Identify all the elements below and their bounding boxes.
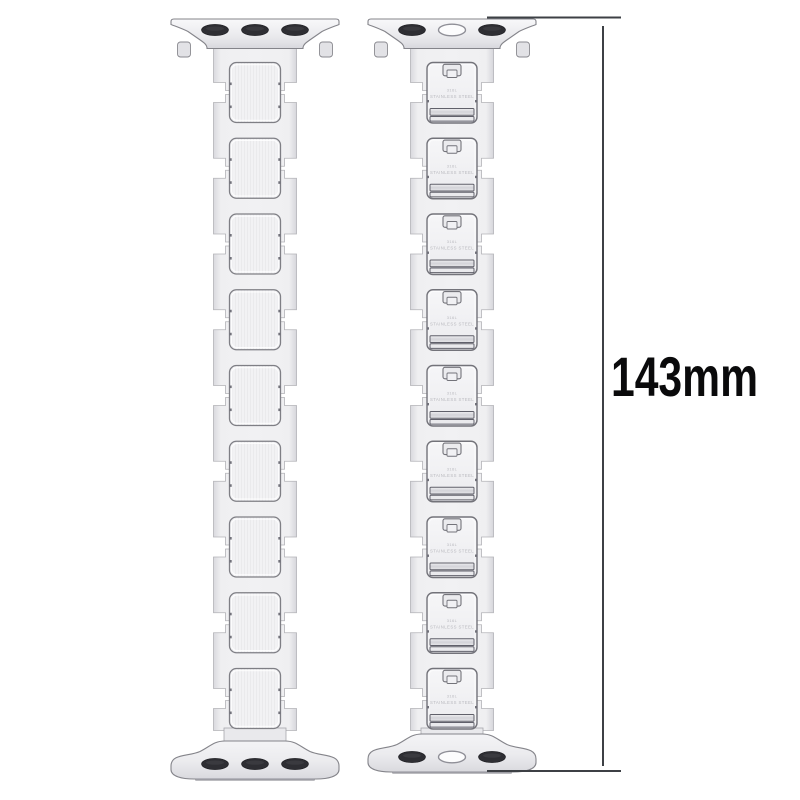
dimension-annotation: 143mm: [487, 18, 758, 772]
hinge-pin-mark: [278, 636, 280, 639]
hinge-pin-mark: [278, 386, 280, 389]
band-link-plate-back: 316LSTAINLESS STEEL: [427, 214, 477, 275]
clasp-bar: [430, 639, 474, 646]
lug-slot-sheen: [403, 27, 421, 31]
band-link-square: [230, 669, 281, 729]
adapter-side-tab: [178, 42, 191, 57]
link-face: [230, 441, 281, 501]
lug-slot-sheen: [403, 754, 421, 758]
adapter-side-tab: [517, 42, 530, 57]
clasp-tab-inner: [447, 373, 457, 381]
hinge-pin-mark: [475, 555, 477, 557]
clasp-bar: [430, 192, 474, 197]
clasp-bar: [430, 184, 474, 191]
band-link-plate-back: 316LSTAINLESS STEEL: [427, 138, 477, 199]
hinge-pin-mark: [278, 181, 280, 184]
clasp-tab-inner: [447, 525, 457, 533]
adapter-bottom-edge: [195, 779, 315, 781]
hinge-pin-mark: [475, 327, 477, 329]
hinge-pin-mark: [230, 181, 232, 184]
clasp-bar: [430, 487, 474, 494]
hinge-pin-mark: [278, 257, 280, 260]
adapter-side-tab: [320, 42, 333, 57]
lug-slot-sheen: [206, 27, 224, 31]
hinge-pin-mark: [427, 252, 429, 254]
hinge-pin-mark: [278, 461, 280, 464]
clasp-tab-inner: [447, 70, 457, 78]
clasp-bar: [430, 117, 474, 122]
band-link-square: [230, 214, 281, 274]
link-face: [230, 214, 281, 274]
engraving-line-1: 316L: [447, 466, 458, 471]
band-link-square: [230, 366, 281, 426]
link-face: [230, 517, 281, 577]
hinge-pin-mark: [475, 479, 477, 481]
clasp-bar: [430, 109, 474, 116]
lug-slot-sheen: [246, 27, 264, 31]
hinge-pin-mark: [427, 555, 429, 557]
band-link-plate-back: 316LSTAINLESS STEEL: [427, 593, 477, 654]
hinge-pin-mark: [230, 83, 232, 86]
clasp-bar: [430, 571, 474, 576]
lug-slot-sheen: [483, 754, 501, 758]
hinge-pin-mark: [230, 613, 232, 616]
band-link-square: [230, 138, 281, 198]
clasp-tab-inner: [447, 449, 457, 457]
clasp-bar: [430, 412, 474, 419]
hinge-pin-mark: [278, 106, 280, 109]
hinge-pin-mark: [230, 560, 232, 563]
hinge-pin-mark: [278, 333, 280, 336]
hinge-pin-mark: [278, 310, 280, 313]
clasp-tab-inner: [447, 676, 457, 684]
engraving-line-2: STAINLESS STEEL: [430, 624, 474, 629]
clasp-bar: [430, 723, 474, 728]
hinge-pin-mark: [230, 689, 232, 692]
hinge-pin-mark: [230, 636, 232, 639]
dimension-label: 143mm: [611, 345, 758, 408]
clasp-tab-inner: [447, 146, 457, 154]
link-face: [230, 366, 281, 426]
hinge-pin-mark: [230, 484, 232, 487]
hinge-pin-mark: [427, 327, 429, 329]
band-link-plate-back: 316LSTAINLESS STEEL: [427, 63, 477, 124]
hinge-pin-mark: [427, 403, 429, 405]
link-face: [230, 63, 281, 123]
engraving-line-2: STAINLESS STEEL: [430, 170, 474, 175]
product-image-canvas: 316LSTAINLESS STEEL316LSTAINLESS STEEL31…: [0, 0, 800, 800]
link-face: [230, 593, 281, 653]
lug-slot-light: [439, 751, 466, 763]
engraving-line-1: 316L: [447, 163, 458, 168]
band-link-square: [230, 441, 281, 501]
hinge-pin-mark: [475, 252, 477, 254]
hinge-pin-mark: [278, 712, 280, 715]
clasp-bar: [430, 420, 474, 425]
hinge-pin-mark: [230, 409, 232, 412]
watch-band-product-photo: 316LSTAINLESS STEEL316LSTAINLESS STEEL31…: [0, 0, 800, 800]
hinge-pin-mark: [278, 689, 280, 692]
engraving-line-1: 316L: [447, 315, 458, 320]
band-link-plate-back: 316LSTAINLESS STEEL: [427, 517, 477, 578]
band-link-plate-back: 316LSTAINLESS STEEL: [427, 366, 477, 427]
band-link-plate-back: 316LSTAINLESS STEEL: [427, 441, 477, 502]
engraving-line-2: STAINLESS STEEL: [430, 397, 474, 402]
lug-slot-sheen: [483, 27, 501, 31]
hinge-pin-mark: [230, 310, 232, 313]
band-link-square: [230, 290, 281, 350]
watch-lug-adapter-bottom: [171, 741, 339, 781]
hinge-pin-mark: [230, 537, 232, 540]
engraving-line-1: 316L: [447, 391, 458, 396]
clasp-bar: [430, 336, 474, 343]
engraving-line-2: STAINLESS STEEL: [430, 549, 474, 554]
hinge-pin-mark: [230, 234, 232, 237]
lug-slot-sheen: [246, 761, 264, 765]
engraving-line-2: STAINLESS STEEL: [430, 94, 474, 99]
engraving-line-1: 316L: [447, 542, 458, 547]
clasp-bar: [430, 563, 474, 570]
hinge-pin-mark: [230, 461, 232, 464]
lug-slot-sheen: [286, 761, 304, 765]
engraving-line-2: STAINLESS STEEL: [430, 246, 474, 251]
link-face: [230, 138, 281, 198]
hinge-pin-mark: [278, 83, 280, 86]
hinge-pin-mark: [278, 560, 280, 563]
clasp-bar: [430, 260, 474, 267]
adapter-side-tab: [375, 42, 388, 57]
clasp-tab-inner: [447, 600, 457, 608]
link-face: [230, 290, 281, 350]
lug-slot-sheen: [286, 27, 304, 31]
band-link-plate-back: 316LSTAINLESS STEEL: [427, 290, 477, 351]
lug-slot-light: [439, 24, 466, 36]
band-link-square: [230, 63, 281, 123]
hinge-pin-mark: [427, 176, 429, 178]
hinge-pin-mark: [278, 484, 280, 487]
engraving-line-2: STAINLESS STEEL: [430, 321, 474, 326]
watch-lug-adapter-bottom: [368, 734, 536, 774]
hinge-pin-mark: [230, 333, 232, 336]
hinge-pin-mark: [475, 403, 477, 405]
hinge-pin-mark: [278, 537, 280, 540]
hinge-pin-mark: [278, 409, 280, 412]
link-face: [230, 669, 281, 729]
hinge-pin-mark: [475, 176, 477, 178]
hinge-pin-mark: [475, 100, 477, 102]
engraving-line-1: 316L: [447, 239, 458, 244]
engraving-line-1: 316L: [447, 618, 458, 623]
hinge-pin-mark: [427, 630, 429, 632]
hinge-pin-mark: [230, 386, 232, 389]
hinge-pin-mark: [230, 712, 232, 715]
clasp-tab-inner: [447, 222, 457, 230]
hinge-pin-mark: [230, 158, 232, 161]
hinge-pin-mark: [230, 257, 232, 260]
clasp-bar: [430, 647, 474, 652]
hinge-pin-mark: [278, 158, 280, 161]
hinge-pin-mark: [278, 234, 280, 237]
band-front-view: [171, 19, 339, 781]
hinge-pin-mark: [427, 100, 429, 102]
hinge-pin-mark: [278, 613, 280, 616]
clasp-tab-inner: [447, 297, 457, 305]
engraving-line-1: 316L: [447, 88, 458, 93]
band-link-square: [230, 593, 281, 653]
lug-slot-sheen: [206, 761, 224, 765]
band-link-square: [230, 517, 281, 577]
engraving-line-2: STAINLESS STEEL: [430, 473, 474, 478]
band-back-view: 316LSTAINLESS STEEL316LSTAINLESS STEEL31…: [368, 19, 536, 774]
engraving-line-1: 316L: [447, 694, 458, 699]
hinge-pin-mark: [475, 706, 477, 708]
hinge-pin-mark: [475, 630, 477, 632]
clasp-bar: [430, 715, 474, 722]
band-end-stem: [224, 728, 286, 741]
band-link-plate-back: 316LSTAINLESS STEEL: [427, 669, 477, 730]
clasp-bar: [430, 268, 474, 273]
hinge-pin-mark: [427, 706, 429, 708]
clasp-bar: [430, 344, 474, 349]
hinge-pin-mark: [230, 106, 232, 109]
engraving-line-2: STAINLESS STEEL: [430, 700, 474, 705]
hinge-pin-mark: [427, 479, 429, 481]
clasp-bar: [430, 495, 474, 500]
